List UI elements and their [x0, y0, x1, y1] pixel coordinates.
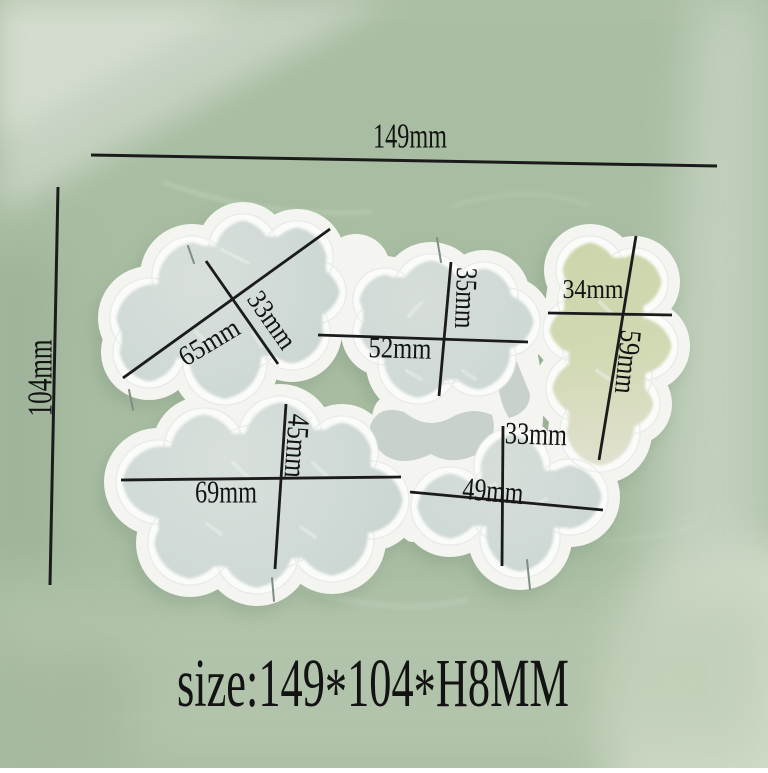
svg-text:45mm: 45mm [278, 413, 317, 479]
svg-text:34mm: 34mm [563, 274, 624, 304]
svg-text:52mm: 52mm [368, 331, 432, 366]
svg-text:size:149*104*H8MM: size:149*104*H8MM [177, 645, 569, 730]
svg-text:33mm: 33mm [504, 415, 567, 452]
svg-text:69mm: 69mm [195, 474, 257, 510]
svg-text:49mm: 49mm [461, 470, 525, 511]
svg-text:104mm: 104mm [21, 340, 60, 417]
svg-text:35mm: 35mm [448, 267, 483, 329]
svg-text:149mm: 149mm [373, 117, 447, 156]
svg-text:59mm: 59mm [608, 328, 648, 395]
